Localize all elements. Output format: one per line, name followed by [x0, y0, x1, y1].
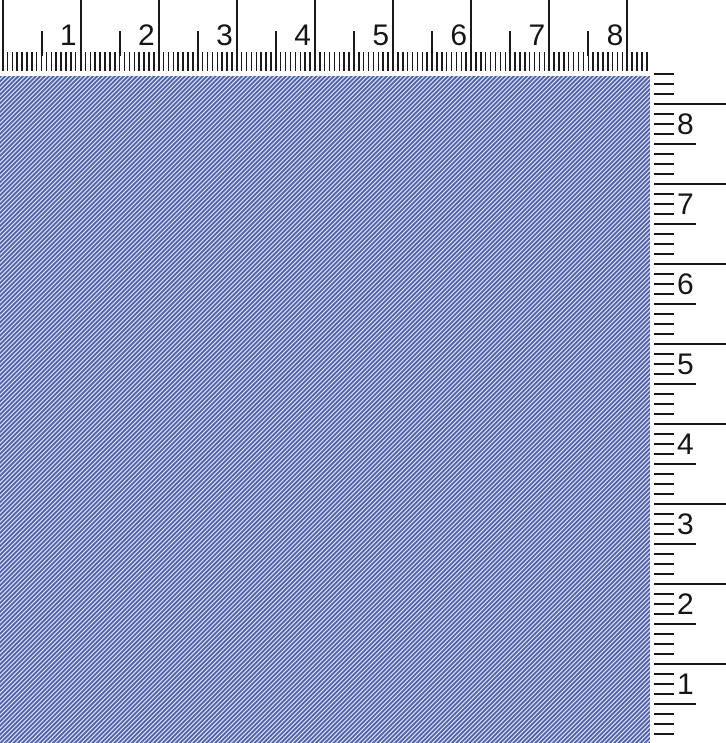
sixteenth-inch-tick: [90, 52, 92, 71]
sixteenth-inch-tick: [641, 52, 643, 71]
sixteenth-inch-tick: [134, 52, 136, 71]
sixteenth-inch-tick: [465, 52, 467, 71]
eighth-inch-tick: [654, 713, 674, 715]
sixteenth-inch-tick: [129, 52, 131, 71]
sixteenth-inch-tick: [236, 52, 238, 71]
sixteenth-inch-tick: [70, 52, 72, 71]
sixteenth-inch-tick: [553, 52, 555, 71]
sixteenth-inch-tick: [246, 52, 248, 71]
eighth-inch-tick: [654, 333, 674, 335]
sixteenth-inch-tick: [104, 52, 106, 71]
sixteenth-inch-tick: [495, 52, 497, 71]
eighth-inch-tick: [654, 523, 674, 525]
half-inch-tick: [654, 703, 696, 705]
eighth-inch-tick: [654, 433, 674, 435]
sixteenth-inch-tick: [422, 52, 424, 71]
sixteenth-inch-tick: [256, 52, 258, 71]
sixteenth-inch-tick: [207, 52, 209, 71]
sixteenth-inch-tick: [622, 52, 624, 71]
eighth-inch-tick: [654, 613, 674, 615]
sixteenth-inch-tick: [168, 52, 170, 71]
eighth-inch-tick: [654, 173, 674, 175]
sixteenth-inch-tick: [324, 52, 326, 71]
sixteenth-inch-tick: [221, 52, 223, 71]
eighth-inch-tick: [654, 153, 674, 155]
eighth-inch-tick: [654, 413, 674, 415]
sixteenth-inch-tick: [617, 52, 619, 71]
inch-line: [654, 583, 726, 585]
sixteenth-inch-tick: [534, 52, 536, 71]
eighth-inch-tick: [654, 633, 674, 635]
eighth-inch-tick: [654, 323, 674, 325]
eighth-inch-tick: [654, 603, 674, 605]
inch-line: [470, 0, 472, 71]
sixteenth-inch-tick: [114, 52, 116, 71]
sixteenth-inch-tick: [373, 52, 375, 71]
sixteenth-inch-tick: [514, 52, 516, 71]
inch-line: [654, 503, 726, 505]
sixteenth-inch-tick: [197, 52, 199, 71]
eighth-inch-tick: [654, 363, 674, 365]
sixteenth-inch-tick: [31, 52, 33, 71]
eighth-inch-tick: [654, 393, 674, 395]
eighth-inch-tick: [654, 423, 674, 425]
half-inch-tick: [654, 543, 696, 545]
eighth-inch-tick: [654, 693, 674, 695]
eighth-inch-tick: [654, 663, 674, 665]
ruler-label: 3: [216, 21, 233, 51]
inch-line: [654, 263, 726, 265]
sixteenth-inch-tick: [202, 52, 204, 71]
inch-line: [2, 0, 4, 71]
sixteenth-inch-tick: [402, 52, 404, 71]
sixteenth-inch-tick: [631, 52, 633, 71]
sixteenth-inch-tick: [36, 52, 38, 71]
sixteenth-inch-tick: [300, 52, 302, 71]
eighth-inch-tick: [654, 203, 674, 205]
sixteenth-inch-tick: [275, 52, 277, 71]
eighth-inch-tick: [654, 273, 674, 275]
eighth-inch-tick: [654, 283, 674, 285]
inch-line: [392, 0, 394, 71]
eighth-inch-tick: [654, 703, 674, 705]
inch-line: [626, 0, 628, 71]
sixteenth-inch-tick: [177, 52, 179, 71]
half-inch-tick: [119, 31, 121, 56]
sixteenth-inch-tick: [46, 52, 48, 71]
sixteenth-inch-tick: [539, 52, 541, 71]
sixteenth-inch-tick: [217, 52, 219, 71]
sixteenth-inch-tick: [192, 52, 194, 71]
half-inch-tick: [654, 463, 696, 465]
eighth-inch-tick: [654, 223, 674, 225]
ruler-label: 3: [677, 510, 694, 540]
eighth-inch-tick: [654, 303, 674, 305]
sixteenth-inch-tick: [583, 52, 585, 71]
ruler-label: 4: [294, 21, 311, 51]
inch-line: [654, 343, 726, 345]
sixteenth-inch-tick: [241, 52, 243, 71]
sixteenth-inch-tick: [382, 52, 384, 71]
sixteenth-inch-tick: [558, 52, 560, 71]
half-inch-tick: [654, 223, 696, 225]
sixteenth-inch-tick: [21, 52, 23, 71]
sixteenth-inch-tick: [41, 52, 43, 71]
eighth-inch-tick: [654, 293, 674, 295]
sixteenth-inch-tick: [339, 52, 341, 71]
sixteenth-inch-tick: [529, 52, 531, 71]
sixteenth-inch-tick: [607, 52, 609, 71]
eighth-inch-tick: [654, 623, 674, 625]
eighth-inch-tick: [654, 383, 674, 385]
eighth-inch-tick: [654, 483, 674, 485]
ruler-label: 1: [677, 670, 694, 700]
sixteenth-inch-tick: [12, 52, 14, 71]
sixteenth-inch-tick: [51, 52, 53, 71]
sixteenth-inch-tick: [358, 52, 360, 71]
sixteenth-inch-tick: [461, 52, 463, 71]
eighth-inch-tick: [654, 113, 674, 115]
sixteenth-inch-tick: [124, 52, 126, 71]
sixteenth-inch-tick: [441, 52, 443, 71]
half-inch-tick: [353, 31, 355, 56]
eighth-inch-tick: [654, 193, 674, 195]
sixteenth-inch-tick: [509, 52, 511, 71]
sixteenth-inch-tick: [94, 52, 96, 71]
sixteenth-inch-tick: [392, 52, 394, 71]
sixteenth-inch-tick: [334, 52, 336, 71]
sixteenth-inch-tick: [314, 52, 316, 71]
eighth-inch-tick: [654, 233, 674, 235]
sixteenth-inch-tick: [578, 52, 580, 71]
eighth-inch-tick: [654, 263, 674, 265]
eighth-inch-tick: [654, 573, 674, 575]
eighth-inch-tick: [654, 403, 674, 405]
sixteenth-inch-tick: [7, 52, 9, 71]
sixteenth-inch-tick: [182, 52, 184, 71]
eighth-inch-tick: [654, 373, 674, 375]
sixteenth-inch-tick: [592, 52, 594, 71]
sixteenth-inch-tick: [597, 52, 599, 71]
sixteenth-inch-tick: [2, 52, 4, 71]
sixteenth-inch-tick: [153, 52, 155, 71]
inch-line: [654, 183, 726, 185]
sixteenth-inch-tick: [26, 52, 28, 71]
eighth-inch-tick: [654, 73, 674, 75]
sixteenth-inch-tick: [627, 52, 629, 71]
sixteenth-inch-tick: [470, 52, 472, 71]
eighth-inch-tick: [654, 133, 674, 135]
sixteenth-inch-tick: [397, 52, 399, 71]
sixteenth-inch-tick: [55, 52, 57, 71]
sixteenth-inch-tick: [548, 52, 550, 71]
half-inch-tick: [197, 31, 199, 56]
sixteenth-inch-tick: [524, 52, 526, 71]
sixteenth-inch-tick: [475, 52, 477, 71]
sixteenth-inch-tick: [417, 52, 419, 71]
sixteenth-inch-tick: [251, 52, 253, 71]
sixteenth-inch-tick: [187, 52, 189, 71]
sixteenth-inch-tick: [480, 52, 482, 71]
sixteenth-inch-tick: [60, 52, 62, 71]
half-inch-tick: [587, 31, 589, 56]
eighth-inch-tick: [654, 503, 674, 505]
eighth-inch-tick: [654, 343, 674, 345]
sixteenth-inch-tick: [353, 52, 355, 71]
sixteenth-inch-tick: [348, 52, 350, 71]
eighth-inch-tick: [654, 93, 674, 95]
ruler-label: 6: [450, 21, 467, 51]
eighth-inch-tick: [654, 253, 674, 255]
sixteenth-inch-tick: [446, 52, 448, 71]
eighth-inch-tick: [654, 213, 674, 215]
inch-line: [654, 423, 726, 425]
sixteenth-inch-tick: [285, 52, 287, 71]
sixteenth-inch-tick: [588, 52, 590, 71]
eighth-inch-tick: [654, 583, 674, 585]
ruler-label: 5: [677, 350, 694, 380]
sixteenth-inch-tick: [519, 52, 521, 71]
sixteenth-inch-tick: [636, 52, 638, 71]
sixteenth-inch-tick: [265, 52, 267, 71]
sixteenth-inch-tick: [505, 52, 507, 71]
eighth-inch-tick: [654, 313, 674, 315]
eighth-inch-tick: [654, 673, 674, 675]
inch-line: [654, 103, 726, 105]
sixteenth-inch-tick: [280, 52, 282, 71]
sixteenth-inch-tick: [485, 52, 487, 71]
sixteenth-inch-tick: [309, 52, 311, 71]
sixteenth-inch-tick: [329, 52, 331, 71]
ruler-label: 6: [677, 270, 694, 300]
sixteenth-inch-tick: [602, 52, 604, 71]
eighth-inch-tick: [654, 513, 674, 515]
sixteenth-inch-tick: [407, 52, 409, 71]
half-inch-tick: [431, 31, 433, 56]
eighth-inch-tick: [654, 123, 674, 125]
inch-line: [158, 0, 160, 71]
sixteenth-inch-tick: [646, 52, 648, 71]
sixteenth-inch-tick: [612, 52, 614, 71]
ruler-label: 5: [372, 21, 389, 51]
sixteenth-inch-tick: [387, 52, 389, 71]
sixteenth-inch-tick: [231, 52, 233, 71]
inch-line: [548, 0, 550, 71]
sixteenth-inch-tick: [426, 52, 428, 71]
half-inch-tick: [41, 31, 43, 56]
sixteenth-inch-tick: [378, 52, 380, 71]
sixteenth-inch-tick: [290, 52, 292, 71]
sixteenth-inch-tick: [212, 52, 214, 71]
sixteenth-inch-tick: [148, 52, 150, 71]
ruler-label: 2: [677, 590, 694, 620]
fabric-swatch: [0, 76, 650, 743]
eighth-inch-tick: [654, 243, 674, 245]
sixteenth-inch-tick: [173, 52, 175, 71]
sixteenth-inch-tick: [568, 52, 570, 71]
sixteenth-inch-tick: [16, 52, 18, 71]
inch-line: [314, 0, 316, 71]
inch-line: [654, 663, 726, 665]
sixteenth-inch-tick: [451, 52, 453, 71]
eighth-inch-tick: [654, 543, 674, 545]
eighth-inch-tick: [654, 473, 674, 475]
eighth-inch-tick: [654, 723, 674, 725]
eighth-inch-tick: [654, 733, 674, 735]
half-inch-tick: [654, 303, 696, 305]
sixteenth-inch-tick: [343, 52, 345, 71]
sixteenth-inch-tick: [270, 52, 272, 71]
sixteenth-inch-tick: [226, 52, 228, 71]
eighth-inch-tick: [654, 143, 674, 145]
sixteenth-inch-tick: [363, 52, 365, 71]
sixteenth-inch-tick: [573, 52, 575, 71]
sixteenth-inch-tick: [143, 52, 145, 71]
half-inch-tick: [275, 31, 277, 56]
sixteenth-inch-tick: [158, 52, 160, 71]
sixteenth-inch-tick: [163, 52, 165, 71]
sixteenth-inch-tick: [368, 52, 370, 71]
sixteenth-inch-tick: [500, 52, 502, 71]
eighth-inch-tick: [654, 683, 674, 685]
ruler-label: 7: [677, 190, 694, 220]
eighth-inch-tick: [654, 183, 674, 185]
ruler-label: 1: [60, 21, 77, 51]
sixteenth-inch-tick: [563, 52, 565, 71]
half-inch-tick: [654, 383, 696, 385]
sixteenth-inch-tick: [119, 52, 121, 71]
ruler-label: 8: [607, 21, 624, 51]
sixteenth-inch-tick: [319, 52, 321, 71]
sixteenth-inch-tick: [412, 52, 414, 71]
sixteenth-inch-tick: [80, 52, 82, 71]
fabric-scan: 12345678 87654321: [0, 0, 726, 743]
half-inch-tick: [654, 143, 696, 145]
ruler-label: 4: [677, 430, 694, 460]
eighth-inch-tick: [654, 563, 674, 565]
eighth-inch-tick: [654, 453, 674, 455]
sixteenth-inch-tick: [109, 52, 111, 71]
sixteenth-inch-tick: [431, 52, 433, 71]
eighth-inch-tick: [654, 643, 674, 645]
sixteenth-inch-tick: [260, 52, 262, 71]
sixteenth-inch-tick: [436, 52, 438, 71]
ruler-label: 8: [677, 110, 694, 140]
inch-line: [80, 0, 82, 71]
eighth-inch-tick: [654, 533, 674, 535]
sixteenth-inch-tick: [295, 52, 297, 71]
half-inch-tick: [509, 31, 511, 56]
eighth-inch-tick: [654, 653, 674, 655]
sixteenth-inch-tick: [138, 52, 140, 71]
ruler-label: 2: [138, 21, 155, 51]
eighth-inch-tick: [654, 443, 674, 445]
eighth-inch-tick: [654, 493, 674, 495]
ruler-label: 7: [529, 21, 546, 51]
eighth-inch-tick: [654, 83, 674, 85]
sixteenth-inch-tick: [85, 52, 87, 71]
sixteenth-inch-tick: [544, 52, 546, 71]
eighth-inch-tick: [654, 163, 674, 165]
sixteenth-inch-tick: [99, 52, 101, 71]
half-inch-tick: [654, 623, 696, 625]
sixteenth-inch-tick: [304, 52, 306, 71]
sixteenth-inch-tick: [490, 52, 492, 71]
sixteenth-inch-tick: [65, 52, 67, 71]
inch-line: [236, 0, 238, 71]
eighth-inch-tick: [654, 593, 674, 595]
sixteenth-inch-tick: [456, 52, 458, 71]
eighth-inch-tick: [654, 553, 674, 555]
eighth-inch-tick: [654, 463, 674, 465]
sixteenth-inch-tick: [75, 52, 77, 71]
eighth-inch-tick: [654, 103, 674, 105]
eighth-inch-tick: [654, 353, 674, 355]
